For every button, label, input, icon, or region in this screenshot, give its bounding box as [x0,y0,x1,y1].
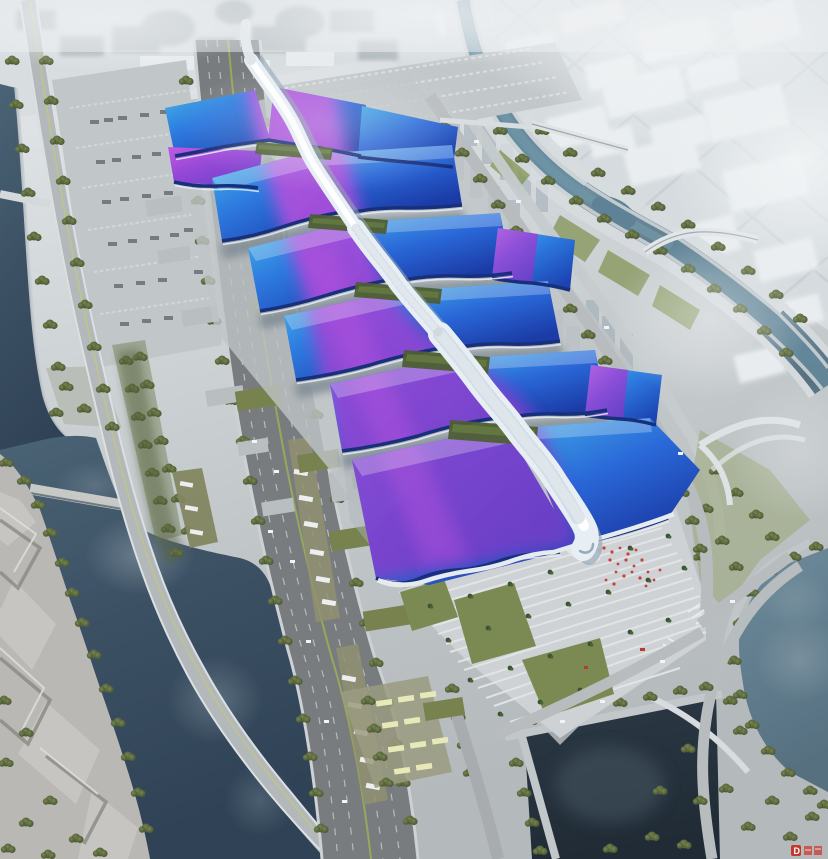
svg-text:D: D [794,846,801,856]
